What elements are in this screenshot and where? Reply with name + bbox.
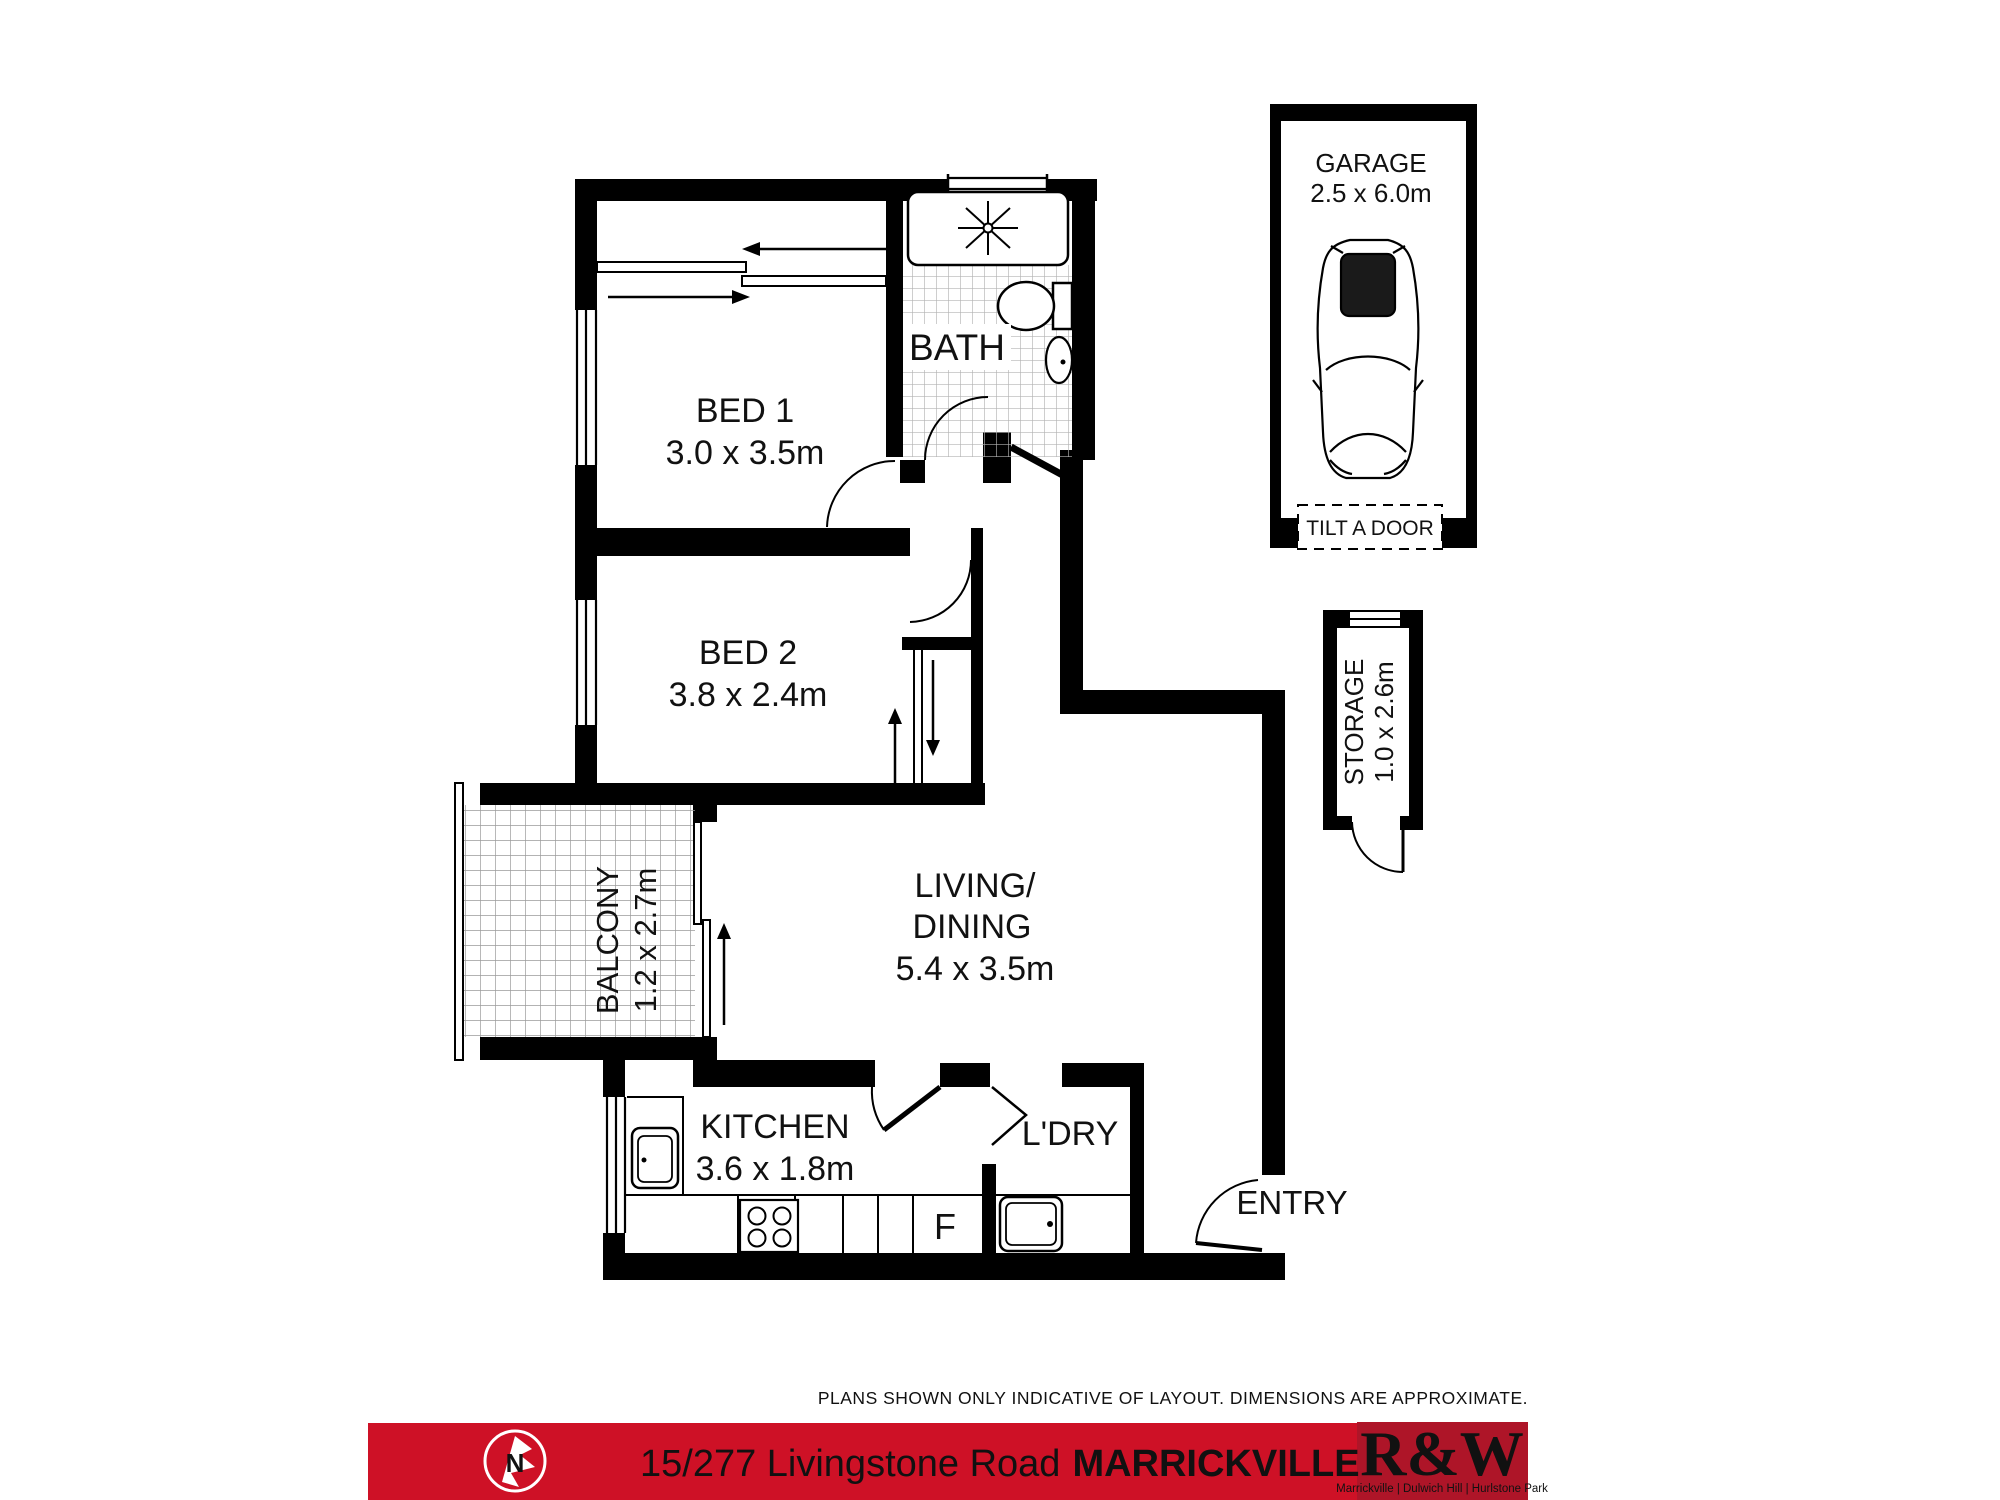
disclaimer-text: PLANS SHOWN ONLY INDICATIVE OF LAYOUT. D…	[818, 1388, 1528, 1408]
laundry-fixtures	[996, 1195, 1130, 1251]
address-suburb: MARRICKVILLE	[1072, 1443, 1359, 1485]
agency-logo-text: R&W	[1360, 1418, 1524, 1489]
bed2-wardrobe	[888, 650, 940, 791]
bed1-label: BED 1	[696, 392, 794, 430]
north-letter: N	[506, 1448, 525, 1478]
tilt-door-label: TILT A DOOR	[1306, 517, 1434, 540]
footer: PLANS SHOWN ONLY INDICATIVE OF LAYOUT. D…	[368, 1388, 1548, 1500]
floorplan-page: BED 1 3.0 x 3.5m BATH BED 2 3.8 x 2.4m L…	[0, 0, 2000, 1500]
storage-window	[1350, 607, 1400, 631]
bed1-window	[571, 310, 600, 465]
car-icon	[1313, 240, 1423, 478]
living-dims: 5.4 x 3.5m	[896, 950, 1055, 988]
bath-label: BATH	[909, 327, 1005, 368]
address-street: 15/277 Livingstone Road	[640, 1443, 1060, 1485]
slide-arrow-down-icon	[926, 660, 940, 756]
fridge-label: F	[934, 1206, 956, 1247]
shower-icon	[908, 192, 1068, 265]
garage-dims: 2.5 x 6.0m	[1310, 178, 1431, 208]
balcony-sliding-door	[694, 822, 731, 1037]
apartment-walls	[480, 179, 1285, 1280]
laundry-label: L'DRY	[1022, 1115, 1119, 1153]
laundry-tub-icon	[1000, 1197, 1062, 1251]
bed2-dims: 3.8 x 2.4m	[669, 676, 828, 714]
entry-label: ENTRY	[1236, 1184, 1347, 1221]
bed1-dims: 3.0 x 3.5m	[666, 434, 825, 472]
balcony-dims: 1.2 x 2.7m	[628, 868, 663, 1013]
storage-label: STORAGE	[1339, 659, 1369, 786]
living-label-line1: LIVING/	[915, 867, 1036, 905]
kitchen-door	[872, 1087, 940, 1130]
agency-offices-text: Marrickville | Dulwich Hill | Hurlstone …	[1336, 1483, 1548, 1495]
slide-arrow-right-icon	[608, 290, 750, 304]
bed2-door-arc	[910, 560, 971, 622]
slide-arrow-up-icon	[888, 708, 902, 788]
bed2-label: BED 2	[699, 634, 797, 672]
storage-dims: 1.0 x 2.6m	[1369, 661, 1399, 782]
kitchen-window	[601, 1097, 627, 1233]
bathroom	[903, 192, 1072, 457]
kitchen-sink-icon	[632, 1128, 678, 1188]
balcony-label: BALCONY	[590, 866, 625, 1014]
slide-arrow-up-icon	[717, 923, 731, 1025]
floorplan-canvas: BED 1 3.0 x 3.5m BATH BED 2 3.8 x 2.4m L…	[0, 0, 2000, 1500]
living-label-line2: DINING	[913, 908, 1032, 946]
storage-door	[1352, 822, 1403, 872]
address-text: 15/277 Livingstone RoadMARRICKVILLE	[640, 1443, 1360, 1485]
toilet-icon	[998, 282, 1072, 330]
cooktop-icon	[740, 1200, 798, 1252]
kitchen-dims: 3.6 x 1.8m	[696, 1150, 855, 1188]
garage-label: GARAGE	[1315, 148, 1426, 178]
bed2-window	[571, 600, 600, 725]
kitchen-label: KITCHEN	[700, 1108, 849, 1146]
bed1-wardrobe	[597, 242, 886, 304]
balcony-railing	[455, 783, 463, 1060]
slide-arrow-left-icon	[742, 242, 886, 256]
bed1-door-arc	[827, 461, 895, 527]
basin-icon	[1046, 337, 1072, 383]
